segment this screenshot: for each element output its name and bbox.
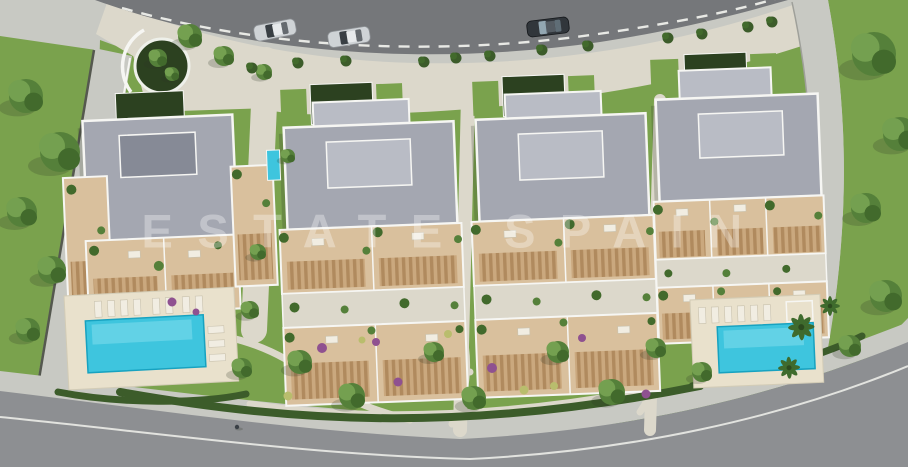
site-render: ESTATE SPAIN [0, 0, 908, 467]
palm-tree [820, 296, 840, 316]
plunge-pool [266, 150, 280, 180]
pool-area-left [64, 287, 239, 390]
aerial-site-plan [0, 0, 908, 467]
